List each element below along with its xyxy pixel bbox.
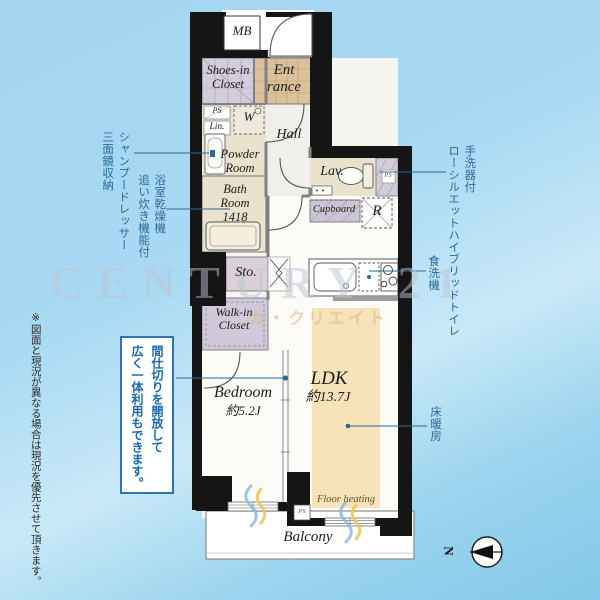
partition-note-box: 間仕切りを開放して 広く一体利用もできます。	[120, 336, 174, 494]
room-label-powder-room: Powder Room	[221, 147, 260, 175]
room-label-lavatory: Lav.	[320, 164, 343, 180]
room-label-bedroom: Bedroom	[214, 384, 272, 402]
hall-floor	[266, 104, 310, 196]
room-label-ps-top: PS	[213, 107, 222, 116]
room-label-bedroom-size: 約5.2J	[225, 404, 260, 419]
leader-dot	[346, 424, 351, 429]
annotation-floor-heating: 床暖房	[428, 406, 444, 442]
room-label-refrigerator: R	[372, 203, 381, 220]
annotation-disclaimer: ※図面と現況が異なる場合は現況を優先させて頂きます。	[28, 312, 43, 587]
room-label-washer: W	[244, 110, 255, 125]
room-label-balcony: Balcony	[283, 529, 332, 546]
room-label-hall: Hall	[277, 127, 302, 143]
annotation-dishwasher: 食洗機	[426, 255, 442, 291]
room-label-ps-lav: PS	[384, 172, 391, 179]
compass	[470, 537, 502, 567]
room-label-walk-in-closet: Walk-in Closet	[216, 306, 253, 333]
annotation-shampoo-dresser: シャンプードレッサー 三面鏡収納	[100, 131, 132, 251]
floor-plan-page: CENTURY 21 カ・クリエイト MB Shoes-in Closet En…	[0, 0, 600, 600]
room-label-mb: MB	[233, 24, 252, 39]
room-label-ps-balcony: PS	[298, 508, 305, 515]
room-label-ldk: LDK	[311, 368, 348, 389]
room-label-entrance: Ent rance	[267, 62, 301, 96]
kitchen-counter	[309, 259, 398, 301]
room-label-shoes-in-closet: Shoes-in Closet	[206, 63, 249, 91]
room-label-storage: Sto.	[235, 265, 256, 281]
room-label-ldk-size: 約13.7J	[306, 390, 351, 406]
room-label-linen: Lin.	[209, 122, 224, 133]
room-label-cupboard: Cupboard	[313, 204, 355, 216]
annotation-toilet: 手洗器付 ローシルエットハイブリッドトイレ	[446, 145, 478, 337]
room-label-floor-heating: Floor heating	[317, 494, 375, 506]
partition-note-text: 間仕切りを開放して 広く一体利用もできます。	[127, 345, 167, 489]
room-label-bath-room: Bath Room 1418	[220, 182, 249, 224]
compass-north-label: N	[441, 546, 457, 555]
annotation-bath-dryer: 浴室乾燥機 追い炊き機能付	[136, 174, 168, 258]
floor-heating-area	[312, 308, 380, 508]
